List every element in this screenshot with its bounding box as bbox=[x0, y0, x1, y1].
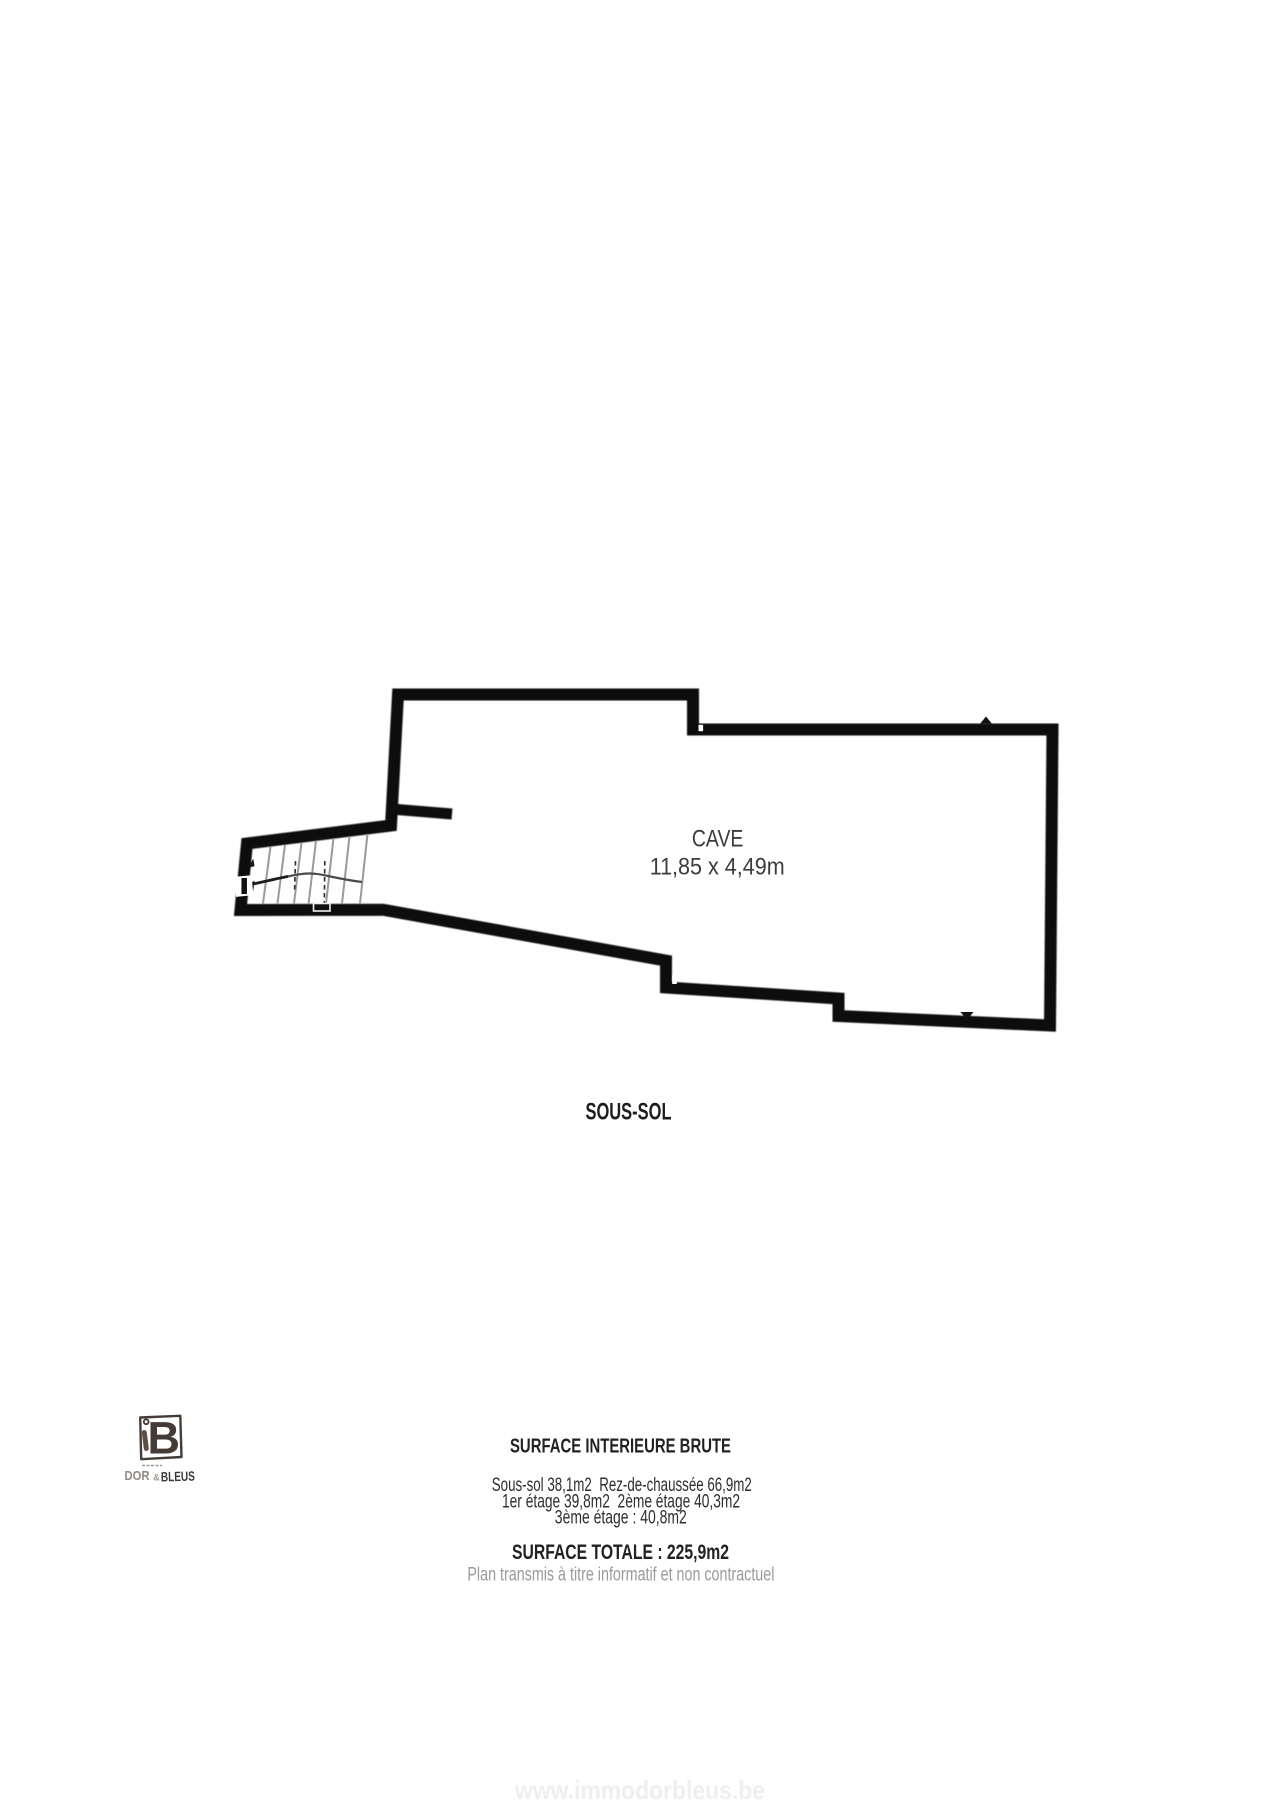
svg-text:SOUS-SOL: SOUS-SOL bbox=[586, 1099, 672, 1126]
svg-text:3ème étage : 40,8m2: 3ème étage : 40,8m2 bbox=[555, 1507, 687, 1529]
svg-text:SURFACE TOTALE : 225,9m2: SURFACE TOTALE : 225,9m2 bbox=[512, 1541, 729, 1564]
svg-text:&: & bbox=[153, 1473, 160, 1483]
svg-text:11,85 x 4,49m: 11,85 x 4,49m bbox=[650, 854, 785, 881]
svg-text:SURFACE INTERIEURE BRUTE: SURFACE INTERIEURE BRUTE bbox=[510, 1436, 731, 1458]
svg-text:CAVE: CAVE bbox=[692, 826, 744, 853]
svg-text:www.immodorbleus.be: www.immodorbleus.be bbox=[514, 1775, 765, 1805]
svg-text:BLEUS: BLEUS bbox=[161, 1469, 195, 1485]
svg-text:DOR: DOR bbox=[125, 1468, 151, 1483]
svg-text:Plan transmis à titre informat: Plan transmis à titre informatif et non … bbox=[467, 1565, 774, 1586]
svg-text:B: B bbox=[148, 1412, 181, 1463]
